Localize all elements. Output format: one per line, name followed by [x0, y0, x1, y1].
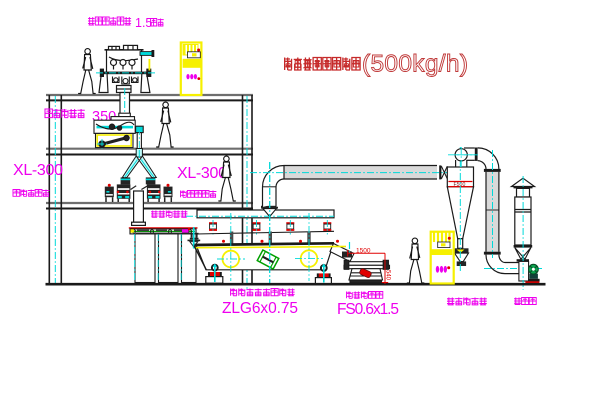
- svg-text:1500: 1500: [356, 247, 371, 254]
- svg-text:F500: F500: [454, 182, 466, 188]
- svg-text:(500kg/h): (500kg/h): [362, 51, 468, 78]
- svg-text:XL-300: XL-300: [13, 162, 63, 179]
- svg-text:XL-300: XL-300: [177, 165, 227, 182]
- svg-text:1.5: 1.5: [135, 16, 152, 30]
- svg-text:ZLG6x0.75: ZLG6x0.75: [222, 300, 298, 317]
- svg-text:FS0.6x1.5: FS0.6x1.5: [337, 301, 399, 318]
- svg-text:540: 540: [385, 270, 391, 281]
